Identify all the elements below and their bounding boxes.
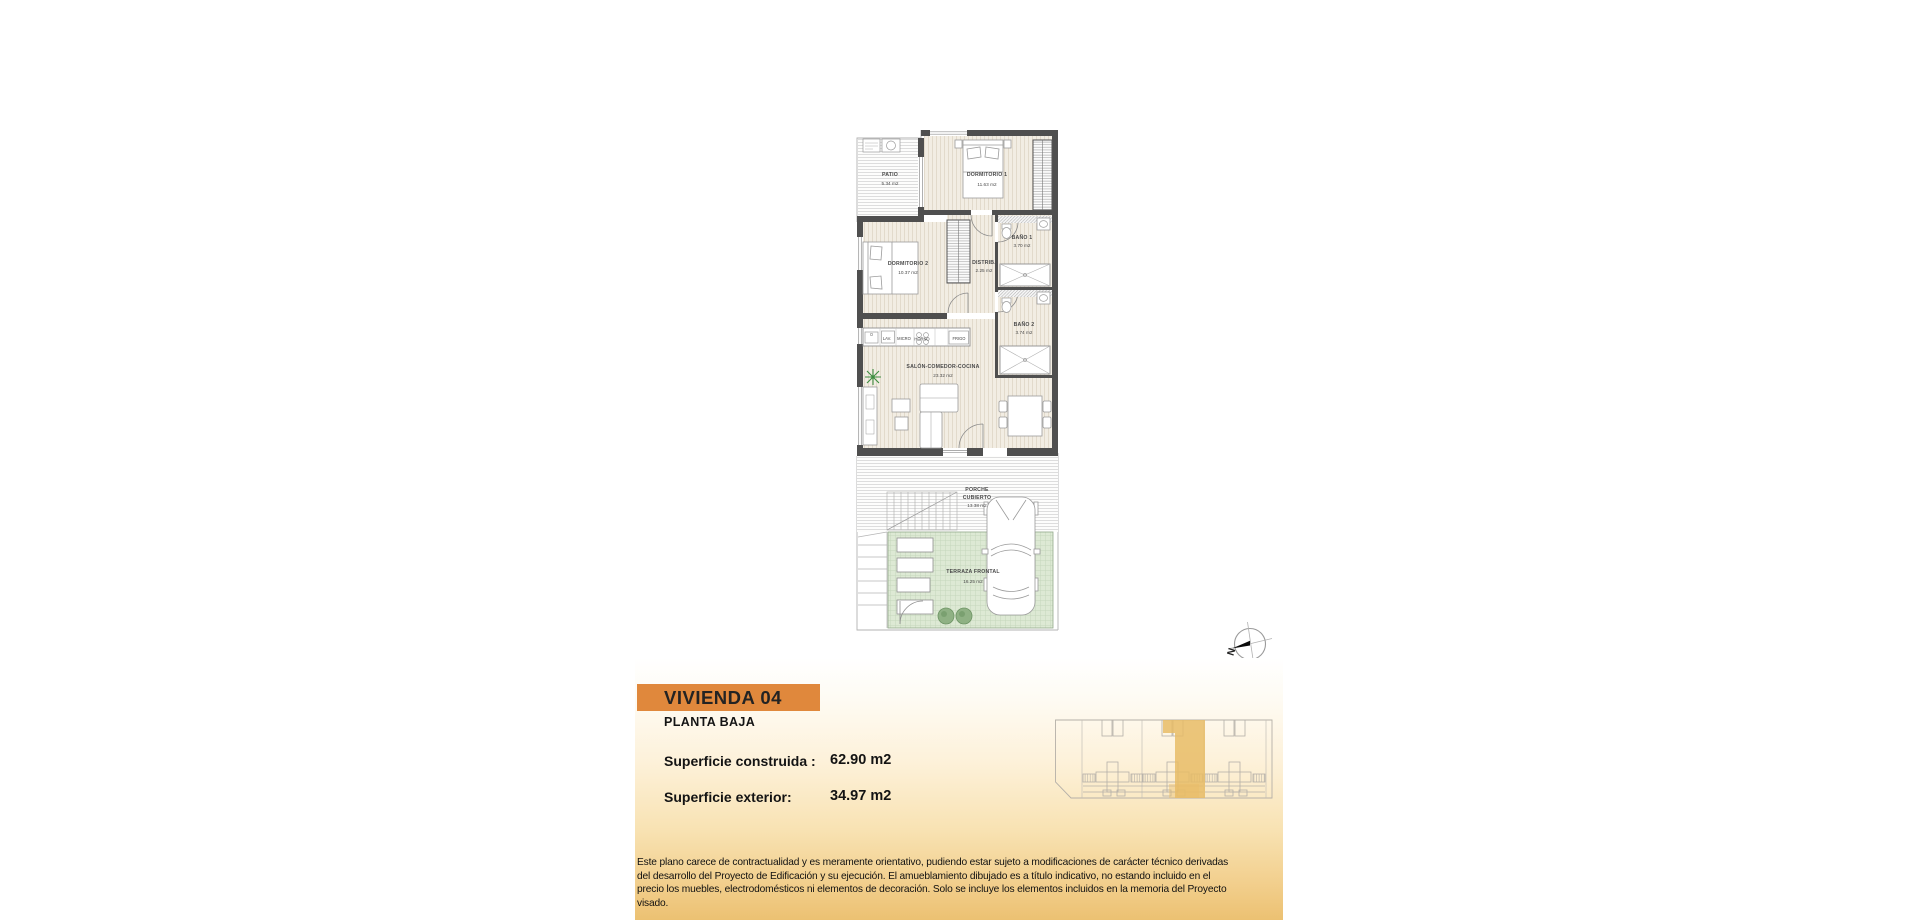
room-area-dorm2: 10.37 m2 [898, 270, 918, 275]
disclaimer: Este plano carece de contractualidad y e… [637, 856, 1283, 910]
room-label-porche-1: PORCHE [965, 487, 989, 493]
room-label-dorm2: DORMITORIO 2 [888, 261, 928, 267]
kitchen-counter: LAV. MICRO HORNO FRIGO [863, 328, 970, 346]
room-area-bano1: 3.70 m2 [1014, 243, 1031, 248]
room-label-dorm1: DORMITORIO 1 [967, 172, 1007, 178]
room-label-terraza: TERRAZA FRONTAL [946, 569, 1000, 575]
room-label-bano1: BAÑO 1 [1012, 234, 1033, 241]
room-label-distrib: DISTRIB. [972, 260, 996, 266]
disclaimer-line: del desarrollo del Proyecto de Edificaci… [637, 870, 1283, 884]
room-area-bano2: 3.74 m2 [1016, 330, 1033, 335]
floor-plan: LAV. MICRO HORNO FRIGO [840, 100, 1080, 645]
room-label-salon: SALÓN-COMEDOR-COCINA [906, 362, 979, 370]
room-label-porche-2: CUBIERTO [963, 495, 992, 501]
room-label-bano2: BAÑO 2 [1014, 321, 1035, 328]
room-area-patio: 5.34 m2 [882, 181, 899, 186]
highlighted-unit [1163, 720, 1205, 798]
bed-dormitorio-1 [955, 140, 1011, 198]
side-steps [858, 532, 887, 628]
label-horno: HORNO [914, 337, 929, 342]
label-frigo: FRIGO [953, 336, 966, 341]
disclaimer-line: Este plano carece de contractualidad y e… [637, 856, 1283, 870]
plant-icon [865, 369, 881, 385]
room-area-dorm1: 11.63 m2 [977, 182, 997, 187]
label-lav: LAV. [883, 336, 891, 341]
compass-north-label: N [1226, 647, 1239, 657]
unit-title-banner: VIVIENDA 04 [637, 684, 820, 711]
site-plan-thumbnail [1053, 716, 1275, 800]
planters [897, 538, 933, 624]
disclaimer-line: precio los muebles, electrodomésticos ni… [637, 883, 1283, 897]
floor-plan-svg: LAV. MICRO HORNO FRIGO [840, 100, 1080, 645]
bed-dormitorio-2 [863, 242, 918, 294]
label-micro: MICRO [897, 336, 911, 341]
exterior-area-label: Superficie exterior: [664, 789, 792, 805]
room-label-patio: PATIO [882, 172, 898, 178]
car [982, 497, 1040, 615]
built-area-value: 62.90 m2 [830, 752, 891, 768]
dining-table [1008, 396, 1042, 436]
room-area-terraza: 16.25 m2 [963, 579, 983, 584]
plan-sheet: LAV. MICRO HORNO FRIGO [0, 0, 1920, 920]
coffee-table [892, 399, 910, 412]
room-area-distrib: 2.25 m2 [976, 268, 993, 273]
room-area-porche: 13.38 m2 [967, 503, 987, 508]
floor-label: PLANTA BAJA [664, 715, 755, 729]
room-area-salon: 23.32 m2 [933, 373, 953, 378]
site-plan-svg [1053, 716, 1275, 800]
exterior-area-value: 34.97 m2 [830, 788, 891, 804]
disclaimer-line: visado. [637, 897, 1283, 911]
built-area-label: Superficie construida : [664, 753, 816, 769]
